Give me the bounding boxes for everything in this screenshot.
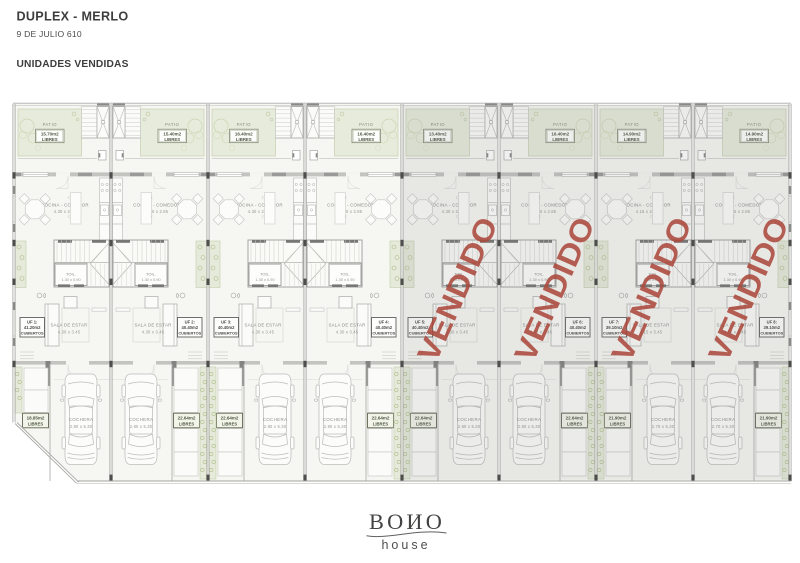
svg-text:PATIO: PATIO — [43, 122, 58, 127]
svg-text:SALA DE ESTAR: SALA DE ESTAR — [244, 323, 281, 328]
svg-text:UNIDADES VENDIDAS: UNIDADES VENDIDAS — [17, 59, 129, 70]
svg-text:2.80 x 5.30: 2.80 x 5.30 — [70, 424, 93, 429]
svg-text:CUBIERTOS: CUBIERTOS — [21, 331, 44, 336]
svg-text:LIBRES: LIBRES — [222, 421, 238, 426]
svg-text:LIBRES: LIBRES — [373, 421, 389, 426]
svg-text:41.20m2: 41.20m2 — [24, 325, 41, 330]
svg-text:UF 2:: UF 2: — [185, 319, 195, 324]
svg-text:TOIL.: TOIL. — [340, 271, 350, 276]
svg-text:LIBRES: LIBRES — [179, 421, 195, 426]
svg-text:COCHERA: COCHERA — [263, 417, 288, 422]
svg-text:LIBRES: LIBRES — [42, 137, 58, 142]
svg-text:2.80 x 5.30: 2.80 x 5.30 — [264, 424, 287, 429]
svg-text:TOIL.: TOIL. — [260, 271, 270, 276]
svg-text:LIBRES: LIBRES — [164, 137, 180, 142]
svg-text:PATIO: PATIO — [165, 122, 180, 127]
svg-text:house: house — [381, 538, 430, 552]
svg-text:40.40m2: 40.40m2 — [182, 325, 199, 330]
svg-text:SALA DE ESTAR: SALA DE ESTAR — [134, 323, 171, 328]
svg-text:4.30 x 3.45: 4.30 x 3.45 — [336, 329, 359, 334]
svg-text:9 DE JULIO 610: 9 DE JULIO 610 — [17, 29, 82, 39]
svg-text:22.64m2: 22.64m2 — [221, 415, 239, 420]
svg-text:22.64m2: 22.64m2 — [372, 415, 390, 420]
svg-text:1.30 x 0.90: 1.30 x 0.90 — [335, 277, 355, 282]
svg-text:15.40m2: 15.40m2 — [163, 132, 181, 137]
svg-text:LIBRES: LIBRES — [358, 137, 374, 142]
svg-text:18.85m2: 18.85m2 — [27, 415, 45, 420]
svg-text:COCINA - COMEDOR: COCINA - COMEDOR — [327, 203, 375, 208]
svg-text:COCHERA: COCHERA — [323, 417, 348, 422]
svg-text:40.40m2: 40.40m2 — [218, 325, 235, 330]
svg-text:PATIO: PATIO — [359, 122, 374, 127]
svg-text:4.30 x 3.45: 4.30 x 3.45 — [58, 329, 81, 334]
svg-text:COCHERA: COCHERA — [129, 417, 154, 422]
svg-text:COCHERA: COCHERA — [69, 417, 94, 422]
svg-text:SALA DE ESTAR: SALA DE ESTAR — [50, 323, 87, 328]
svg-text:UF 4:: UF 4: — [379, 319, 389, 324]
svg-text:2.80 x 5.30: 2.80 x 5.30 — [324, 424, 347, 429]
svg-text:4.30 x 3.45: 4.30 x 3.45 — [252, 329, 275, 334]
svg-text:COCINA - COMEDOR: COCINA - COMEDOR — [133, 203, 181, 208]
svg-text:TOIL.: TOIL. — [146, 271, 156, 276]
svg-text:2.80 x 5.30: 2.80 x 5.30 — [130, 424, 153, 429]
svg-text:CUBIERTOS: CUBIERTOS — [178, 331, 201, 336]
svg-text:1.30 x 0.90: 1.30 x 0.90 — [61, 277, 81, 282]
svg-text:COCINA - COMEDOR: COCINA - COMEDOR — [235, 203, 283, 208]
svg-text:LIBRES: LIBRES — [236, 137, 252, 142]
svg-text:22.64m2: 22.64m2 — [178, 415, 196, 420]
svg-text:1.30 x 0.90: 1.30 x 0.90 — [255, 277, 275, 282]
svg-text:UF 3:: UF 3: — [221, 319, 231, 324]
svg-text:1.30 x 0.90: 1.30 x 0.90 — [141, 277, 161, 282]
svg-text:CUBIERTOS: CUBIERTOS — [372, 331, 395, 336]
svg-text:16.40m2: 16.40m2 — [357, 132, 375, 137]
svg-text:CUBIERTOS: CUBIERTOS — [215, 331, 238, 336]
svg-text:COCINA - COMEDOR: COCINA - COMEDOR — [41, 203, 89, 208]
svg-text:16.40m2: 16.40m2 — [235, 132, 253, 137]
svg-text:BOИO: BOИO — [369, 509, 445, 534]
svg-text:UF 1:: UF 1: — [27, 319, 37, 324]
svg-text:4.30 x 3.45: 4.30 x 3.45 — [142, 329, 165, 334]
svg-text:LIBRES: LIBRES — [28, 421, 44, 426]
svg-text:40.40m2: 40.40m2 — [376, 325, 393, 330]
svg-text:TOIL.: TOIL. — [66, 271, 76, 276]
svg-text:SALA DE ESTAR: SALA DE ESTAR — [328, 323, 365, 328]
svg-text:PATIO: PATIO — [237, 122, 252, 127]
svg-text:15.70m2: 15.70m2 — [41, 132, 59, 137]
svg-text:DUPLEX - MERLO: DUPLEX - MERLO — [17, 9, 129, 23]
